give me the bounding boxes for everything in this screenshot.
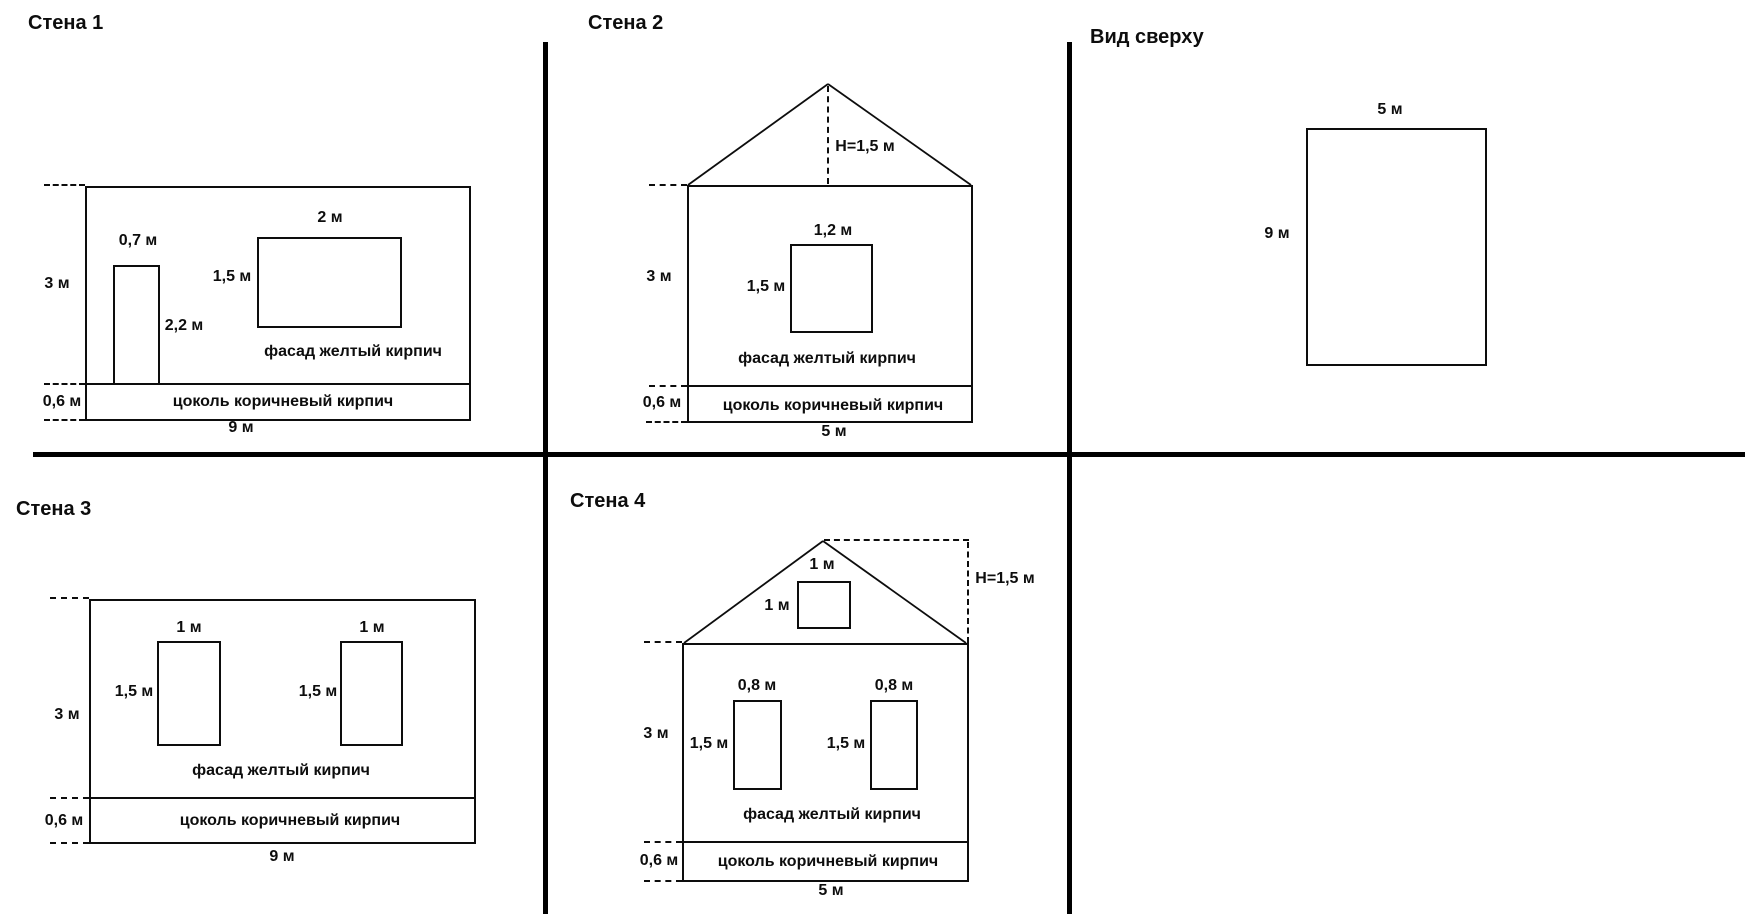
wall1-facade-label: фасад желтый кирпич bbox=[264, 343, 442, 361]
wall1-title: Стена 1 bbox=[28, 12, 103, 35]
top-view-title: Вид сверху bbox=[1090, 26, 1204, 49]
wall3-height-label: 3 м bbox=[54, 706, 79, 724]
wall3-facade-label: фасад желтый кирпич bbox=[192, 762, 370, 780]
wall2-tick-eaves bbox=[649, 184, 687, 186]
wall4-plinth-label: цоколь коричневый кирпич bbox=[718, 853, 938, 871]
wall4-window-1 bbox=[733, 700, 782, 790]
wall1-height-label: 3 м bbox=[44, 275, 69, 293]
wall2-window-height-label: 1,5 м bbox=[747, 278, 786, 296]
wall1-plinth-height-label: 0,6 м bbox=[43, 393, 82, 411]
wall4-tick-facade-bottom bbox=[644, 841, 682, 843]
wall2-roof-left-line bbox=[688, 84, 828, 185]
divider-horizontal bbox=[33, 452, 1745, 457]
wall3-plinth-label: цоколь коричневый кирпич bbox=[180, 812, 400, 830]
wall4-attic-window-width-label: 1 м bbox=[809, 556, 834, 574]
wall4-attic-window-height-label: 1 м bbox=[764, 597, 789, 615]
wall1-door bbox=[113, 265, 160, 385]
wall2-roof-height-dash bbox=[827, 86, 829, 184]
wall3-width-label: 9 м bbox=[269, 848, 294, 866]
top-view-rect bbox=[1306, 128, 1487, 366]
wall4-height-label: 3 м bbox=[643, 725, 668, 743]
wall2-height-label: 3 м bbox=[646, 268, 671, 286]
wall3-tick-plinth-bottom bbox=[50, 842, 89, 844]
wall1-tick-facade-bottom bbox=[44, 383, 85, 385]
wall3-plinth-height-label: 0,6 м bbox=[45, 812, 84, 830]
wall1-window bbox=[257, 237, 402, 328]
wall4-window2-height-label: 1,5 м bbox=[827, 735, 866, 753]
wall4-roof-height-label: H=1,5 м bbox=[975, 570, 1034, 588]
wall2-plinth-height-label: 0,6 м bbox=[643, 394, 682, 412]
wall1-plinth-label: цоколь коричневый кирпич bbox=[173, 393, 393, 411]
wall3-window1-width-label: 1 м bbox=[176, 619, 201, 637]
wall4-tick-eaves bbox=[644, 641, 682, 643]
wall1-door-height-label: 2,2 м bbox=[165, 317, 204, 335]
wall3-tick-top bbox=[50, 597, 89, 599]
divider-vertical-left bbox=[543, 42, 548, 914]
wall2-tick-facade-bottom bbox=[649, 385, 687, 387]
wall4-width-label: 5 м bbox=[818, 882, 843, 900]
wall3-window2-width-label: 1 м bbox=[359, 619, 384, 637]
wall2-facade-label: фасад желтый кирпич bbox=[738, 350, 916, 368]
wall2-window-width-label: 1,2 м bbox=[814, 222, 853, 240]
wall4-window-2 bbox=[870, 700, 918, 790]
wall3-window-1 bbox=[157, 641, 221, 746]
wall4-window1-width-label: 0,8 м bbox=[738, 677, 777, 695]
wall4-tick-plinth-bottom bbox=[644, 880, 682, 882]
wall4-attic-window bbox=[797, 581, 851, 629]
wall1-width-label: 9 м bbox=[228, 419, 253, 437]
wall3-window2-height-label: 1,5 м bbox=[299, 683, 338, 701]
wall4-window2-width-label: 0,8 м bbox=[875, 677, 914, 695]
wall2-roof-height-label: H=1,5 м bbox=[835, 138, 894, 156]
wall2-tick-plinth-bottom bbox=[646, 421, 687, 423]
wall4-window1-height-label: 1,5 м bbox=[690, 735, 729, 753]
wall3-title: Стена 3 bbox=[16, 498, 91, 521]
wall1-door-width-label: 0,7 м bbox=[119, 232, 158, 250]
wall4-roof-height-dash-horizontal bbox=[824, 539, 969, 541]
wall1-window-height-label: 1,5 м bbox=[213, 268, 252, 286]
wall1-tick-plinth-bottom bbox=[44, 419, 85, 421]
wall3-window-2 bbox=[340, 641, 403, 746]
top-view-width-label: 5 м bbox=[1377, 101, 1402, 119]
wall1-tick-top bbox=[44, 184, 85, 186]
wall3-tick-facade-bottom bbox=[50, 797, 89, 799]
wall3-window1-height-label: 1,5 м bbox=[115, 683, 154, 701]
wall4-roof-height-dash-vertical bbox=[967, 542, 969, 643]
wall1-window-width-label: 2 м bbox=[317, 209, 342, 227]
blueprint-canvas: Стена 1 3 м 0,7 м 2,2 м 2 м 1,5 м фасад … bbox=[0, 0, 1745, 921]
wall2-plinth-label: цоколь коричневый кирпич bbox=[723, 397, 943, 415]
top-view-depth-label: 9 м bbox=[1264, 225, 1289, 243]
wall4-plinth-height-label: 0,6 м bbox=[640, 852, 679, 870]
wall2-roof-right-line bbox=[828, 84, 971, 185]
wall2-window bbox=[790, 244, 873, 333]
wall4-title: Стена 4 bbox=[570, 490, 645, 513]
divider-vertical-right bbox=[1067, 42, 1072, 914]
wall2-title: Стена 2 bbox=[588, 12, 663, 35]
wall2-width-label: 5 м bbox=[821, 423, 846, 441]
wall4-facade-label: фасад желтый кирпич bbox=[743, 806, 921, 824]
